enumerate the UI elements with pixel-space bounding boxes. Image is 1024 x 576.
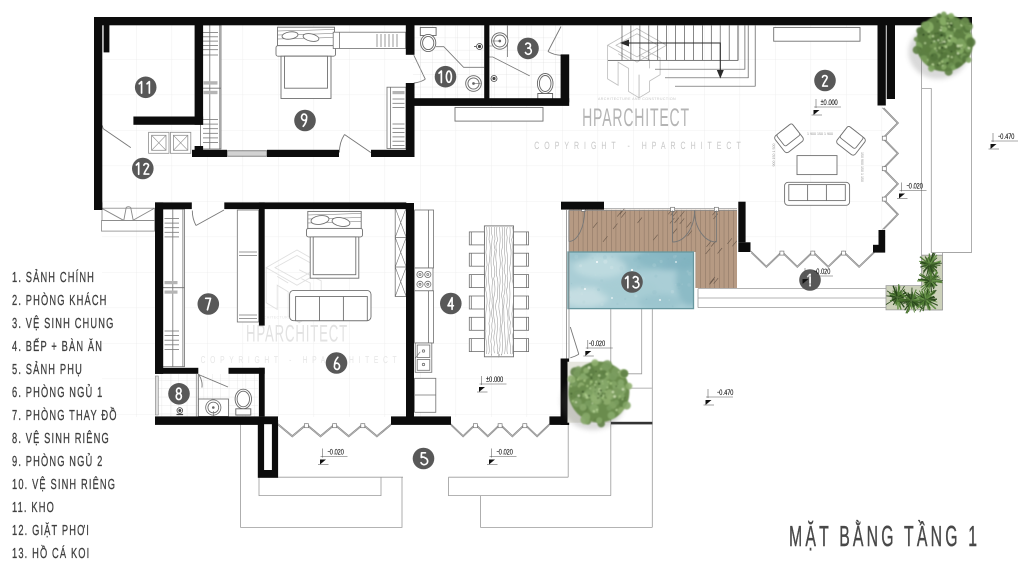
svg-text:ARCHITECTURE AND CONSTRUCTION: ARCHITECTURE AND CONSTRUCTION bbox=[598, 97, 676, 101]
svg-text:COPYRIGHT - HPARCHITECT: COPYRIGHT - HPARCHITECT bbox=[201, 355, 402, 366]
svg-text:COPYRIGHT - HPARCHITECT: COPYRIGHT - HPARCHITECT bbox=[534, 140, 745, 152]
svg-text:900 150 1 500: 900 150 1 500 bbox=[772, 144, 776, 167]
svg-text:1 900 150 1 900: 1 900 150 1 900 bbox=[807, 132, 833, 136]
svg-text:HPARCHITECT: HPARCHITECT bbox=[582, 104, 690, 132]
svg-text:150 900 150 1 150: 150 900 150 1 150 bbox=[860, 152, 864, 182]
